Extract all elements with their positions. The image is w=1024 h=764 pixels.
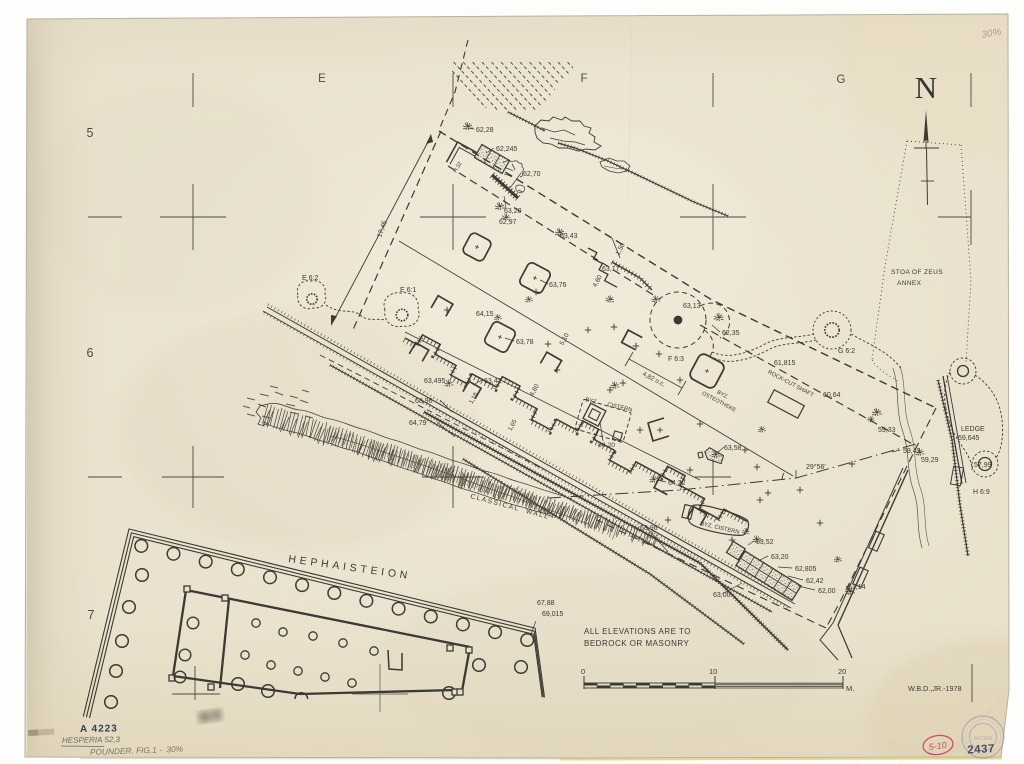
svg-text:63,43: 63,43 [560,233,578,240]
svg-text:2437: 2437 [967,743,995,756]
svg-text:BEDROCK OR MASONRY: BEDROCK OR MASONRY [584,639,689,648]
svg-text:ANNEX: ANNEX [897,280,922,287]
svg-text:0: 0 [581,667,585,676]
svg-text:63,58: 63,58 [724,445,742,452]
svg-text:F 6:3: F 6:3 [668,356,684,363]
svg-text:N: N [915,70,937,105]
svg-text:64,79: 64,79 [409,420,427,427]
svg-text:E 6:2: E 6:2 [302,275,318,282]
svg-text:20: 20 [838,667,846,676]
svg-text:63,20: 63,20 [504,208,522,215]
svg-text:63,96: 63,96 [415,398,433,405]
svg-text:64,20: 64,20 [598,442,615,449]
svg-text:AGORA: AGORA [974,736,993,742]
svg-text:57,99: 57,99 [974,462,992,469]
svg-text:59,645: 59,645 [958,435,980,442]
svg-text:H 6:9: H 6:9 [973,489,990,496]
svg-text:63,495: 63,495 [424,378,446,385]
svg-text:7: 7 [88,608,95,622]
svg-text:62,245: 62,245 [496,146,518,153]
svg-text:67,88: 67,88 [537,600,555,607]
svg-text:63,20: 63,20 [771,554,789,561]
svg-text:63,52: 63,52 [756,539,774,546]
svg-text:63,13: 63,13 [683,303,701,310]
svg-text:69,015: 69,015 [542,611,564,618]
svg-text:62,70: 62,70 [523,171,541,178]
svg-text:63,96: 63,96 [640,525,658,532]
svg-text:62,42: 62,42 [806,578,824,585]
svg-text:E 6:1: E 6:1 [400,287,416,294]
svg-text:62,805: 62,805 [795,566,817,573]
svg-text:F: F [580,73,587,85]
svg-text:59,33: 59,33 [878,427,896,434]
svg-text:63,47: 63,47 [484,378,502,385]
svg-text:E: E [318,73,326,85]
svg-text:A 4223: A 4223 [80,723,118,735]
svg-text:63,17: 63,17 [602,266,620,273]
svg-text:59,43: 59,43 [903,448,921,455]
svg-text:G: G [837,74,846,86]
svg-text:64,22: 64,22 [668,480,686,487]
svg-text:M.: M. [846,684,854,693]
svg-text:5: 5 [87,126,94,140]
svg-text:63,76: 63,76 [549,282,567,289]
svg-text:62,00: 62,00 [818,588,836,595]
svg-text:62,97: 62,97 [499,219,517,226]
svg-text:ALL ELEVATIONS ARE TO: ALL ELEVATIONS ARE TO [584,627,691,636]
svg-text:HESPERIA 52,3: HESPERIA 52,3 [62,735,121,745]
svg-text:63,00: 63,00 [713,592,731,599]
svg-text:W.B.D.,JR.-1978: W.B.D.,JR.-1978 [908,684,962,693]
svg-text:64,15: 64,15 [476,311,494,318]
svg-text:10: 10 [709,667,717,676]
svg-text:59,29: 59,29 [921,457,939,464]
svg-text:61,14: 61,14 [848,584,866,591]
svg-text:61,815: 61,815 [774,360,796,367]
svg-text:29°56': 29°56' [806,463,826,471]
svg-text:LEDGE: LEDGE [961,426,985,433]
svg-text:62,28: 62,28 [476,127,494,134]
svg-text:62,35: 62,35 [722,330,740,337]
svg-text:6: 6 [87,346,94,360]
svg-text:G 6:2: G 6:2 [838,348,855,355]
svg-text:63,78: 63,78 [516,339,534,346]
svg-text:STOA OF ZEUS: STOA OF ZEUS [891,269,943,276]
svg-text:60,64: 60,64 [823,392,841,399]
